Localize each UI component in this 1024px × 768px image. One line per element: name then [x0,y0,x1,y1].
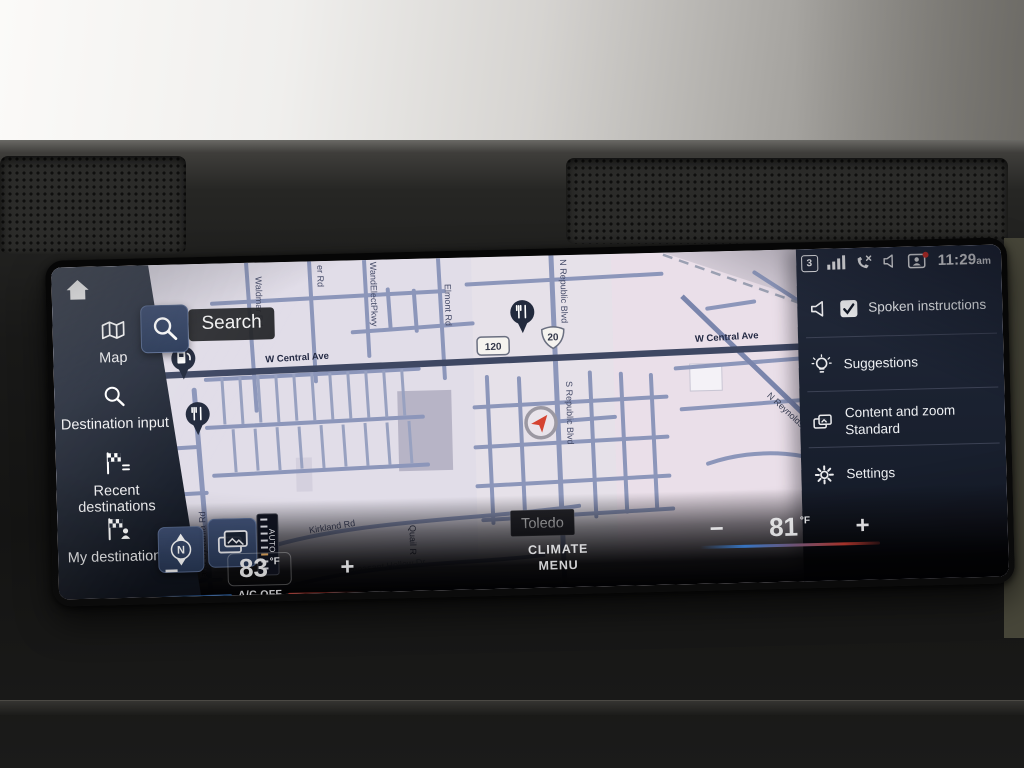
spoken-instructions-checkbox[interactable] [840,299,857,316]
signal-strength-icon [827,255,845,269]
infotainment-screen: W Central Ave W Central Ave Waldmar Rd e… [51,244,1009,599]
background-wall-shade [794,0,1024,156]
route-shield-20: 20 [547,332,559,343]
option-settings[interactable]: Settings [813,449,999,498]
sidebar-item-label: Destination input [55,415,175,434]
phone-disconnected-icon [854,253,873,270]
search-button[interactable] [140,304,189,353]
option-label: Spoken instructions [868,296,986,316]
dashboard-trim-line [0,700,1024,715]
option-suggestions[interactable]: Suggestions [810,339,996,388]
street-label-elmont: Elmont Rd [443,284,454,326]
home-icon [64,277,91,304]
notification-dot [922,252,928,258]
driver-temp-gradient-bar: A/C OFF [155,586,365,599]
passenger-temp-plus-button[interactable]: + [845,513,880,538]
street-label-er-rd: er Rd [315,265,326,287]
clock: 11:29am [938,250,992,268]
option-value: Standard [845,420,956,440]
zoom-auto-label: AUTO [267,529,277,553]
passenger-temp-minus-button[interactable]: − [699,517,734,542]
map-icon [99,318,127,348]
street-label-quail: Quail R [407,525,418,556]
passenger-temp-display[interactable]: 81 °F [769,513,811,541]
search-icon [149,314,180,345]
volume-icon [882,253,898,269]
climate-passenger-controls: − 81 °F + [699,511,880,549]
route-shield-120: 120 [485,342,502,353]
photo-scene: W Central Ave W Central Ave Waldmar Rd e… [0,0,1024,768]
speaker-grille-left [0,156,186,254]
option-label: Settings [846,465,895,483]
vehicle-position-marker [526,407,557,438]
home-button[interactable] [64,277,91,304]
panel-divider [807,387,998,393]
street-label-pkwy: WandElectPkwy [368,262,380,327]
driver-temp-minus-button[interactable]: − [154,559,189,584]
driver-profile-icon [907,251,929,270]
driver-temp-display[interactable]: 83 °F [228,552,292,587]
checkmark-icon [842,302,855,315]
speaker-icon [809,299,829,319]
display-bezel: W Central Ave W Central Ave Waldmar Rd e… [45,237,1015,606]
climate-driver-controls: − 83 °F + A/C OFF [154,550,365,599]
gear-icon [813,464,836,487]
search-label[interactable]: Search [188,307,275,341]
lightbulb-icon [810,354,833,377]
sidebar-item-recent-destinations[interactable]: Recent destinations [56,449,178,517]
sidebar-item-label: Recent destinations [56,482,177,517]
option-label: Suggestions [843,354,918,373]
recent-destinations-flag-icon [102,450,131,481]
city-label: Toledo [521,515,564,532]
climate-menu-button[interactable]: CLIMATE MENU [496,540,621,576]
city-label-box: Toledo [510,509,575,537]
option-content-and-zoom[interactable]: Content and zoom Standard [811,393,997,450]
my-destinations-flag-icon [103,516,132,547]
option-label: Content and zoom Standard [845,403,956,439]
street-label-s-republic: S Republic Blvd [564,381,576,445]
speaker-grille-right [566,158,1008,244]
ac-status-label: A/C OFF [238,588,282,599]
sidebar-item-destination-input[interactable]: Destination input [54,383,175,434]
panel-divider [806,333,997,339]
option-spoken-instructions[interactable]: Spoken instructions [809,283,995,332]
street-label-n-republic: N Republic Blvd [558,259,570,323]
search-destination-icon [102,384,127,414]
network-type-badge: 3 [801,254,818,271]
content-zoom-icon [812,412,835,435]
driver-temp-plus-button[interactable]: + [330,555,365,580]
